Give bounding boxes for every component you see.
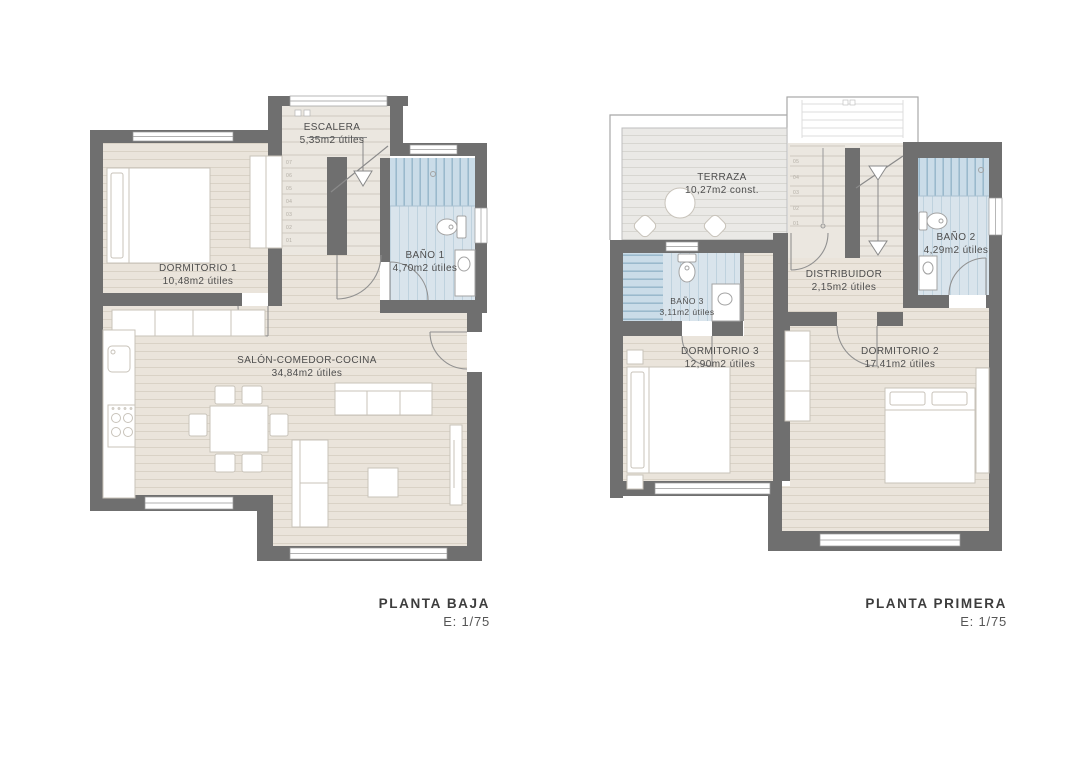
window — [145, 497, 233, 509]
room-area: 3,11m2 útiles — [659, 307, 714, 318]
planta-primera-drawing: 01 02 03 04 05 — [600, 88, 1020, 568]
wall — [467, 372, 482, 561]
tv-unit — [450, 425, 462, 505]
wall — [610, 240, 623, 498]
nightstand — [627, 475, 643, 489]
plan-scale: E: 1/75 — [747, 614, 1007, 629]
stair-step-number: 02 — [286, 225, 292, 231]
bathroom3-shower — [623, 253, 663, 321]
wall — [90, 293, 242, 306]
toilet-icon — [678, 254, 696, 282]
room-name: DORMITORIO 3 — [681, 346, 759, 359]
stair-step-number: 05 — [793, 159, 799, 165]
stair-step-number: 04 — [793, 175, 799, 181]
bedroom3-nook-floor — [744, 253, 773, 336]
stair-marker — [304, 110, 310, 116]
stair-stub-wall — [327, 157, 347, 255]
wall — [610, 321, 682, 336]
room-label-bano-1: BAÑO 1 4,70m2 útiles — [393, 250, 458, 275]
wall — [475, 243, 487, 303]
wall — [380, 158, 390, 262]
window — [820, 534, 960, 546]
wardrobe — [785, 331, 810, 421]
room-name: DORMITORIO 1 — [159, 263, 237, 276]
room-label-dormitorio-1: DORMITORIO 1 10,48m2 útiles — [159, 263, 237, 288]
wall — [712, 321, 743, 336]
window — [410, 145, 457, 154]
window — [655, 483, 770, 494]
bathroom-sink-icon — [455, 250, 475, 296]
floor-plan-sheet: 01 02 03 04 05 06 07 — [0, 0, 1086, 768]
dining-table — [210, 406, 268, 452]
bed — [627, 367, 730, 473]
room-label-dormitorio-3: DORMITORIO 3 12,90m2 útiles — [681, 346, 759, 371]
room-area: 34,84m2 útiles — [237, 368, 377, 381]
wall — [903, 295, 949, 308]
room-label-bano-3: BAÑO 3 3,11m2 útiles — [659, 296, 714, 317]
room-area: 10,27m2 const. — [685, 185, 759, 198]
room-label-bano-2: BAÑO 2 4,29m2 útiles — [924, 232, 989, 257]
room-name: TERRAZA — [685, 172, 759, 185]
pillow — [932, 392, 967, 405]
stair-step-number: 07 — [286, 160, 292, 166]
room-label-terraza: TERRAZA 10,27m2 const. — [685, 172, 759, 197]
window — [290, 548, 447, 559]
stair-step-number: 06 — [286, 173, 292, 179]
stair-marker — [843, 100, 848, 105]
window — [133, 132, 233, 141]
title-block-planta-primera: PLANTA PRIMERA E: 1/75 — [747, 596, 1007, 629]
plan-title: PLANTA PRIMERA — [747, 596, 1007, 611]
bathroom2-shower — [918, 158, 989, 196]
nightstand — [627, 350, 643, 364]
floor-plan-planta-primera: 01 02 03 04 05 — [600, 88, 1020, 568]
stair-step-number: 01 — [793, 221, 799, 227]
wardrobe — [250, 156, 282, 248]
room-name: BAÑO 1 — [393, 250, 458, 263]
bathroom-sink-icon — [712, 284, 740, 321]
room-area: 12,90m2 útiles — [681, 359, 759, 372]
room-name: DORMITORIO 2 — [861, 346, 939, 359]
room-label-dormitorio-2: DORMITORIO 2 17,41m2 útiles — [861, 346, 939, 371]
stair-step-number: 05 — [286, 186, 292, 192]
room-area: 2,15m2 útiles — [806, 282, 882, 295]
wall — [390, 96, 403, 156]
planta-baja-drawing: 01 02 03 04 05 06 07 — [85, 88, 505, 568]
bed — [885, 388, 975, 483]
sofa — [335, 383, 432, 415]
window — [475, 208, 487, 243]
wall — [773, 312, 837, 326]
room-area: 5,35m2 útiles — [300, 135, 365, 148]
bed — [107, 168, 210, 263]
room-label-salon-comedor-cocina: SALÓN-COMEDOR-COCINA 34,84m2 útiles — [237, 355, 377, 380]
wall — [773, 233, 788, 312]
plan-scale: E: 1/75 — [230, 614, 490, 629]
bathroom-sink-icon — [919, 256, 937, 290]
wall — [989, 142, 1002, 198]
wall — [989, 235, 1002, 551]
bathroom1-shower — [390, 158, 475, 206]
window — [989, 198, 1002, 235]
wall — [877, 312, 903, 326]
floor-plan-planta-baja: 01 02 03 04 05 06 07 — [85, 88, 505, 568]
partition-wall — [740, 253, 744, 321]
kitchen-sink-icon — [108, 346, 130, 372]
pillow — [111, 173, 123, 258]
stair-marker — [295, 110, 301, 116]
room-area: 10,48m2 útiles — [159, 276, 237, 289]
room-name: SALÓN-COMEDOR-COCINA — [237, 355, 377, 368]
wall — [90, 130, 103, 511]
room-name: BAÑO 2 — [924, 232, 989, 245]
stair-step-number: 03 — [793, 190, 799, 196]
coffee-table — [368, 468, 398, 497]
wall — [380, 300, 487, 313]
stair-step-number: 03 — [286, 212, 292, 218]
sofa — [292, 440, 328, 527]
room-name: BAÑO 3 — [659, 296, 714, 307]
stair-stub-wall — [845, 148, 860, 258]
pillow — [890, 392, 925, 405]
room-area: 4,29m2 útiles — [924, 245, 989, 258]
stair-step-number: 04 — [286, 199, 292, 205]
pillow — [631, 372, 644, 468]
wall — [986, 295, 1002, 308]
room-name: DISTRIBUIDOR — [806, 269, 882, 282]
title-block-planta-baja: PLANTA BAJA E: 1/75 — [230, 596, 490, 629]
room-label-distribuidor: DISTRIBUIDOR 2,15m2 útiles — [806, 269, 882, 294]
window — [666, 242, 698, 251]
stair-step-number: 01 — [286, 238, 292, 244]
wardrobe — [976, 368, 989, 473]
window — [290, 96, 387, 106]
room-area: 4,70m2 útiles — [393, 263, 458, 276]
room-area: 17,41m2 útiles — [861, 359, 939, 372]
stair-marker — [850, 100, 855, 105]
stair-step-number: 02 — [793, 206, 799, 212]
stove-icon — [108, 405, 135, 447]
plan-title: PLANTA BAJA — [230, 596, 490, 611]
toilet-icon — [919, 212, 947, 230]
room-label-escalera: ESCALERA 5,35m2 útiles — [300, 122, 365, 147]
room-name: ESCALERA — [300, 122, 365, 135]
wall — [903, 142, 918, 295]
